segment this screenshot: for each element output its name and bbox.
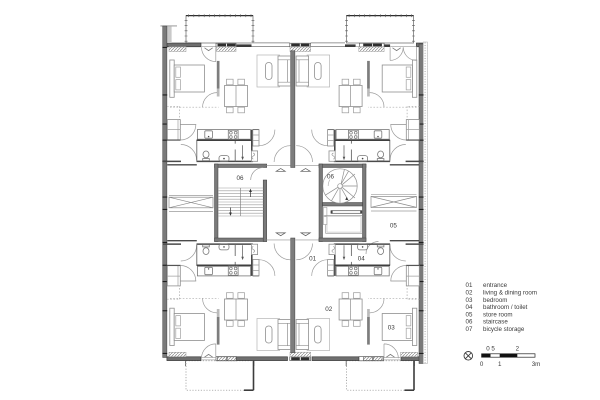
svg-text:01: 01 (309, 256, 317, 263)
svg-text:bicycle storage: bicycle storage (483, 326, 525, 333)
svg-text:store room: store room (483, 311, 513, 318)
svg-text:06: 06 (236, 175, 244, 182)
svg-text:03: 03 (388, 325, 396, 332)
svg-text:3m: 3m (532, 361, 541, 368)
svg-text:bedroom: bedroom (483, 297, 507, 304)
svg-text:07: 07 (466, 326, 473, 333)
svg-text:01: 01 (466, 282, 473, 289)
svg-text:bathroom / toilet: bathroom / toilet (483, 304, 528, 311)
svg-text:living & dining room: living & dining room (483, 290, 537, 297)
svg-text:0: 0 (480, 361, 484, 368)
svg-text:04: 04 (358, 256, 366, 263)
svg-text:02: 02 (325, 306, 333, 313)
svg-text:staircase: staircase (483, 319, 508, 326)
svg-text:entrance: entrance (483, 282, 508, 289)
svg-text:03: 03 (466, 297, 473, 304)
svg-text:06: 06 (327, 173, 335, 180)
svg-text:02: 02 (466, 290, 473, 297)
svg-text:05: 05 (390, 223, 398, 230)
svg-text:1: 1 (498, 361, 502, 368)
svg-text:04: 04 (466, 304, 473, 311)
svg-text:2: 2 (516, 346, 520, 353)
svg-text:05: 05 (466, 311, 473, 318)
svg-text:0 5: 0 5 (486, 346, 495, 353)
svg-text:06: 06 (466, 319, 473, 326)
